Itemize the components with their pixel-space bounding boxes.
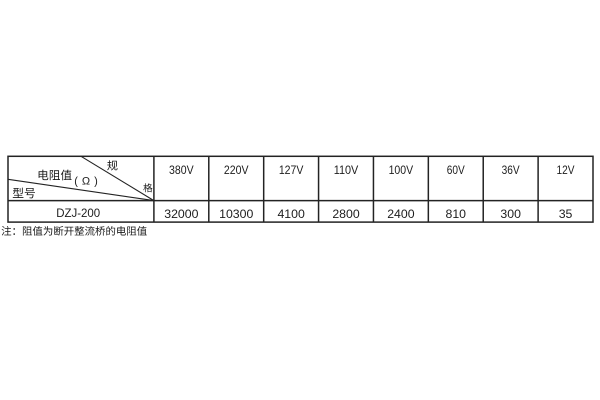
svg-text:4100: 4100 bbox=[277, 207, 305, 221]
svg-text:DZJ-200: DZJ-200 bbox=[56, 206, 100, 220]
svg-text:12V: 12V bbox=[557, 163, 575, 177]
svg-text:127V: 127V bbox=[279, 163, 304, 177]
svg-text:100V: 100V bbox=[389, 163, 414, 177]
svg-text:60V: 60V bbox=[447, 163, 465, 177]
svg-text:2800: 2800 bbox=[332, 207, 360, 221]
svg-text:10300: 10300 bbox=[219, 207, 253, 221]
svg-text:35: 35 bbox=[559, 207, 573, 221]
svg-text:810: 810 bbox=[446, 207, 467, 221]
svg-text:2400: 2400 bbox=[387, 207, 415, 221]
svg-text:32000: 32000 bbox=[164, 207, 198, 221]
svg-text:300: 300 bbox=[500, 207, 521, 221]
svg-text:380V: 380V bbox=[169, 163, 194, 177]
svg-text:(Ω): (Ω) bbox=[74, 176, 102, 188]
svg-text:220V: 220V bbox=[224, 163, 249, 177]
svg-text:36V: 36V bbox=[502, 163, 520, 177]
svg-text:110V: 110V bbox=[334, 163, 359, 177]
